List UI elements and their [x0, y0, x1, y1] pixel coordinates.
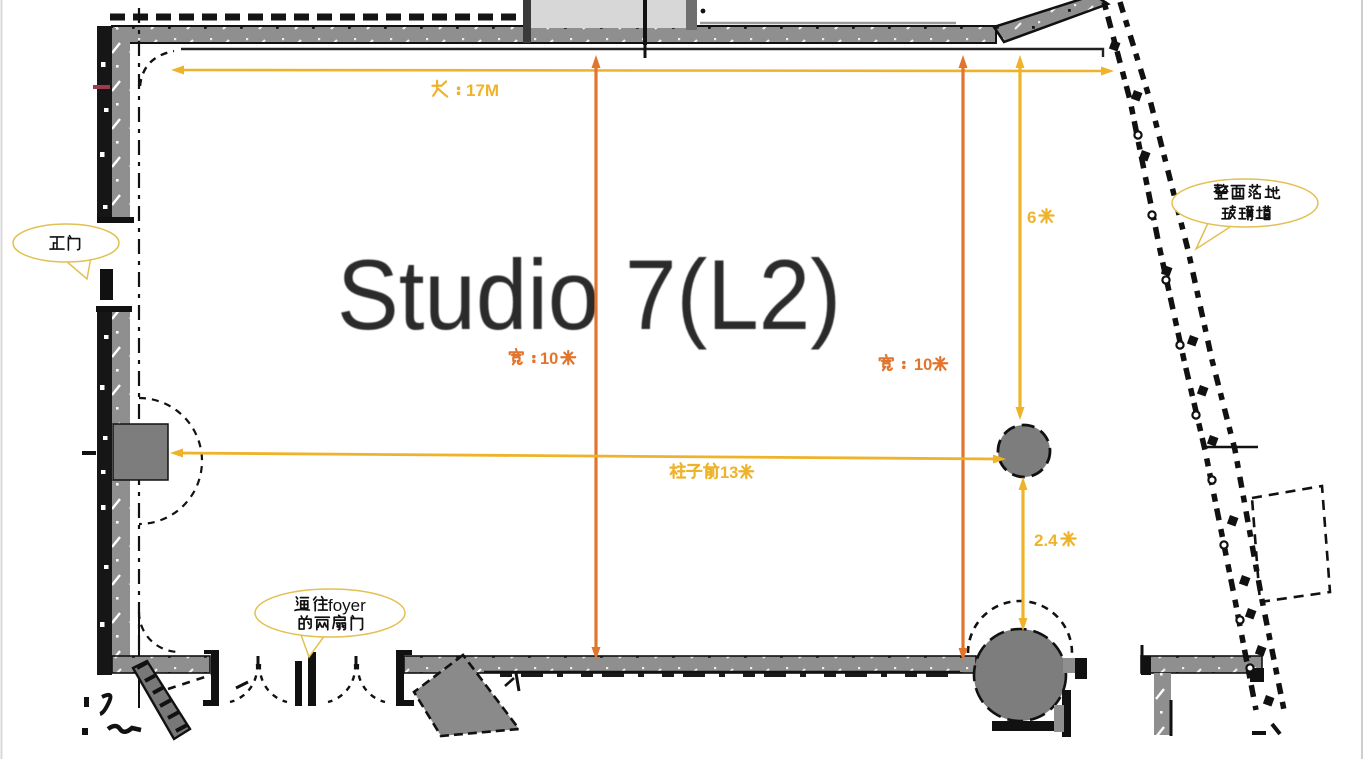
svg-text:10: 10 [914, 356, 932, 374]
svg-text:foyer: foyer [328, 596, 366, 615]
svg-text:17M: 17M [466, 81, 499, 100]
svg-text:10: 10 [540, 350, 558, 368]
svg-text:13: 13 [720, 464, 738, 482]
svg-text:6: 6 [1027, 208, 1036, 227]
svg-text:2.4: 2.4 [1034, 531, 1058, 550]
svg-text:Studio 7(L2): Studio 7(L2) [337, 239, 841, 350]
